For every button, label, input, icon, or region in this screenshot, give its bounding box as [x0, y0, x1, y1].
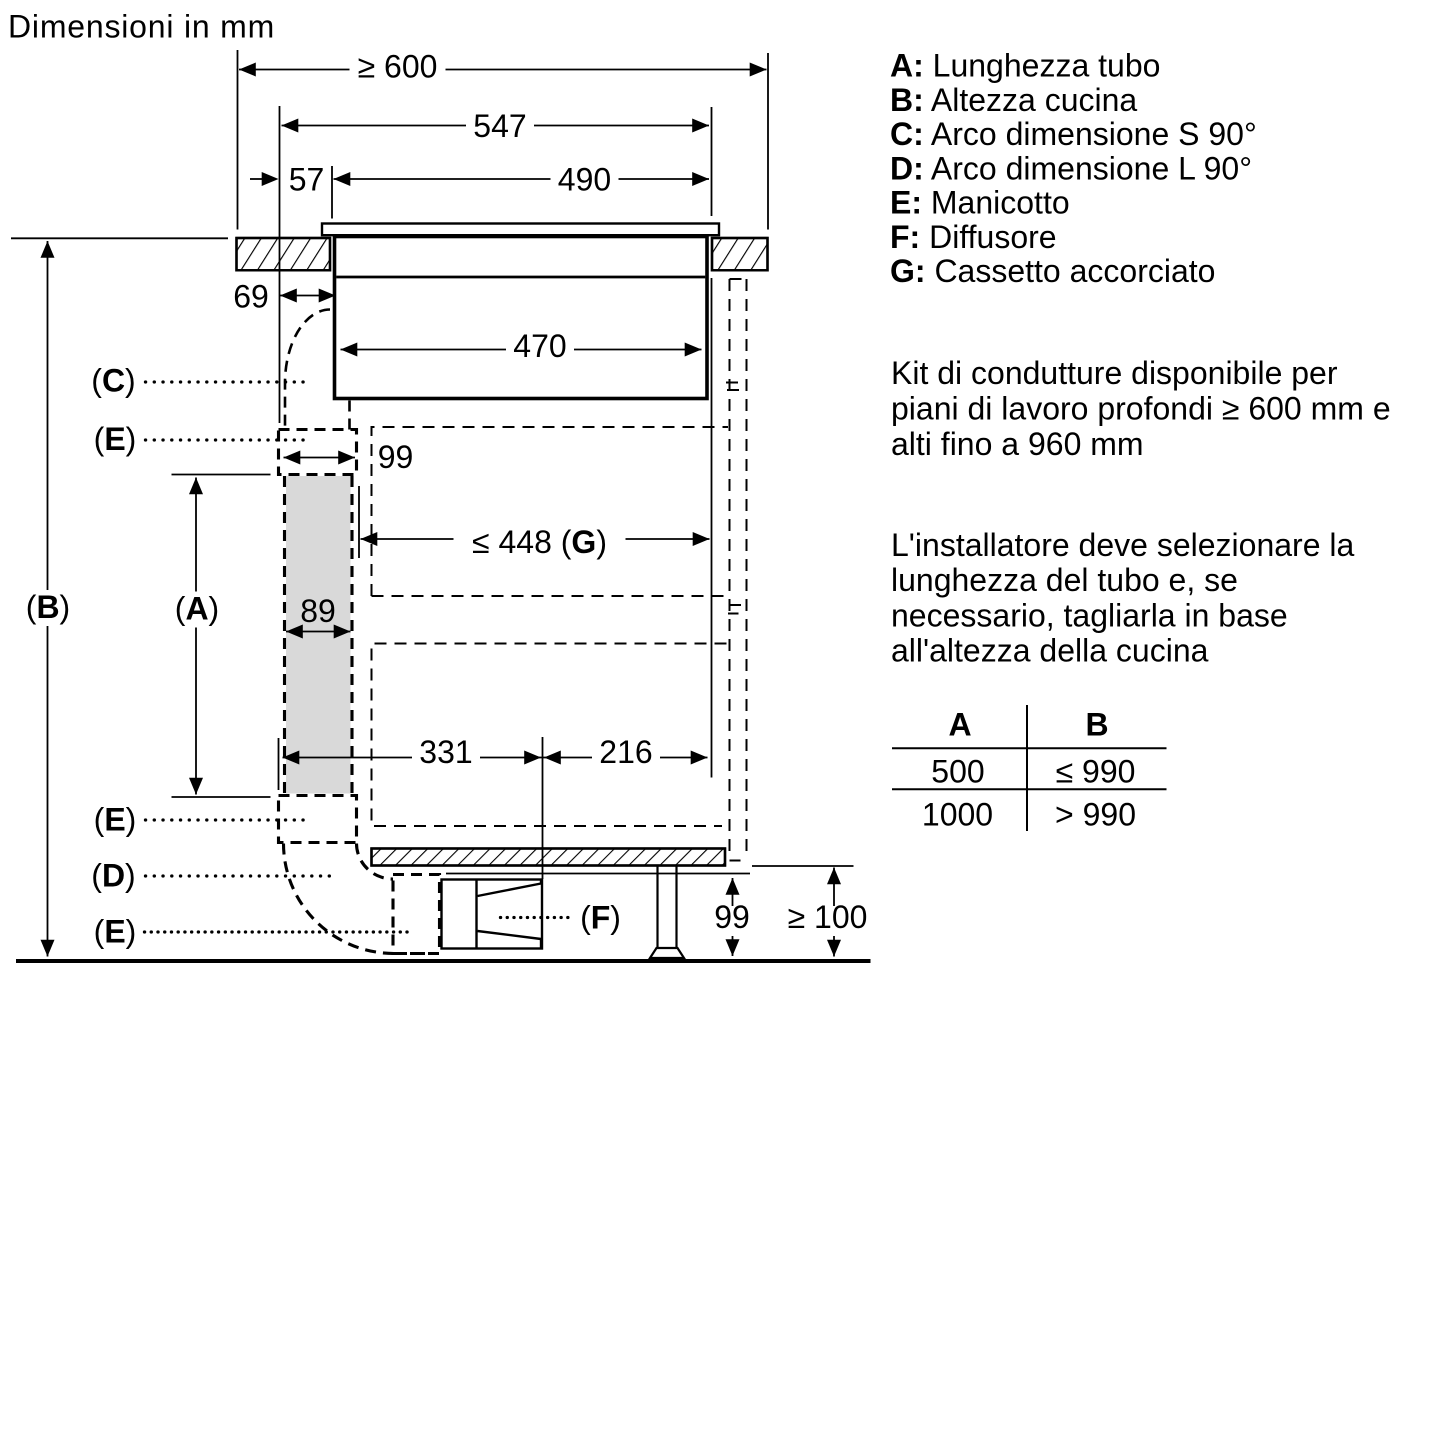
svg-text:(C): (C): [91, 363, 135, 399]
svg-text:C: Arco dimensione S 90°: C: Arco dimensione S 90°: [890, 116, 1257, 152]
svg-text:> 990: > 990: [1055, 796, 1136, 832]
svg-text:≥ 100: ≥ 100: [788, 899, 868, 935]
svg-text:all'altezza della cucina: all'altezza della cucina: [891, 633, 1209, 669]
svg-text:490: 490: [558, 161, 611, 197]
svg-text:F: Diffusore: F: Diffusore: [890, 219, 1057, 255]
svg-text:99: 99: [714, 899, 750, 935]
svg-text:89: 89: [300, 593, 336, 629]
svg-text:(E): (E): [94, 421, 137, 457]
svg-text:1000: 1000: [922, 796, 993, 832]
svg-text:(E): (E): [94, 914, 137, 950]
svg-text:(A): (A): [175, 591, 219, 627]
svg-text:(E): (E): [94, 802, 137, 838]
svg-text:≥ 600: ≥ 600: [358, 48, 438, 84]
svg-text:lunghezza del tubo e, se: lunghezza del tubo e, se: [891, 562, 1238, 598]
svg-text:A: A: [948, 706, 971, 742]
svg-text:L'installatore deve selezionar: L'installatore deve selezionare la: [891, 527, 1354, 563]
svg-text:Dimensioni in mm: Dimensioni in mm: [8, 8, 275, 44]
svg-text:≤ 990: ≤ 990: [1056, 753, 1136, 789]
svg-text:216: 216: [599, 734, 652, 770]
svg-text:D: Arco dimensione L 90°: D: Arco dimensione L 90°: [890, 150, 1252, 186]
svg-text:B: B: [1085, 706, 1108, 742]
svg-text:99: 99: [378, 439, 414, 475]
svg-text:Kit di condutture disponibile: Kit di condutture disponibile per: [891, 355, 1338, 391]
svg-text:B: Altezza cucina: B: Altezza cucina: [890, 82, 1137, 118]
svg-text:57: 57: [289, 161, 325, 197]
svg-text:piani di lavoro profondi ≥ 600: piani di lavoro profondi ≥ 600 mm e: [891, 390, 1391, 426]
svg-text:331: 331: [419, 734, 472, 770]
svg-text:500: 500: [931, 753, 984, 789]
svg-text:(F): (F): [580, 900, 621, 936]
svg-text:necessario, tagliarla in base: necessario, tagliarla in base: [891, 597, 1288, 633]
svg-text:A: Lunghezza tubo: A: Lunghezza tubo: [890, 48, 1160, 84]
svg-text:69: 69: [233, 279, 269, 315]
svg-text:E: Manicotto: E: Manicotto: [890, 185, 1070, 221]
svg-text:547: 547: [473, 108, 526, 144]
svg-text:(D): (D): [91, 858, 135, 894]
svg-text:G: Cassetto accorciato: G: Cassetto accorciato: [890, 253, 1215, 289]
svg-text:alti fino a 960 mm: alti fino a 960 mm: [891, 426, 1144, 462]
svg-text:470: 470: [513, 328, 566, 364]
svg-text:(B): (B): [26, 589, 70, 625]
svg-text:≤ 448 (G): ≤ 448 (G): [472, 524, 607, 560]
